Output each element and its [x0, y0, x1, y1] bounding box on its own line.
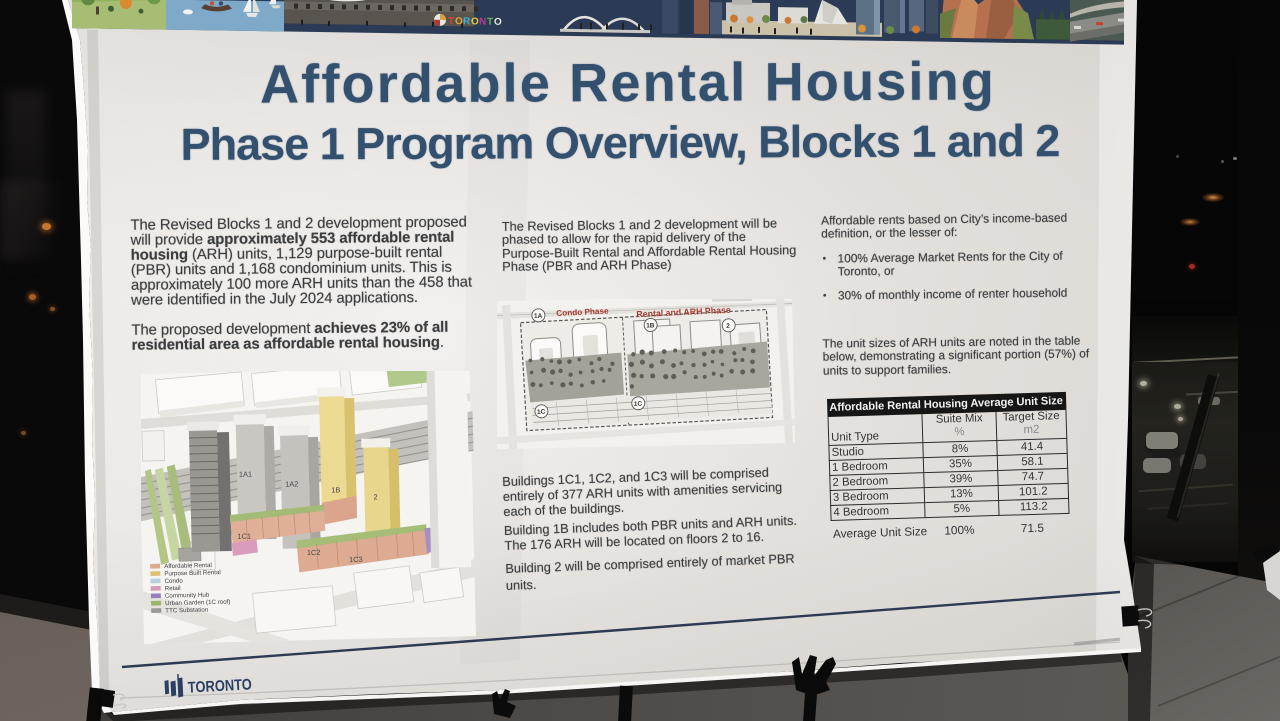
svg-text:TORONTO: TORONTO	[187, 676, 252, 696]
